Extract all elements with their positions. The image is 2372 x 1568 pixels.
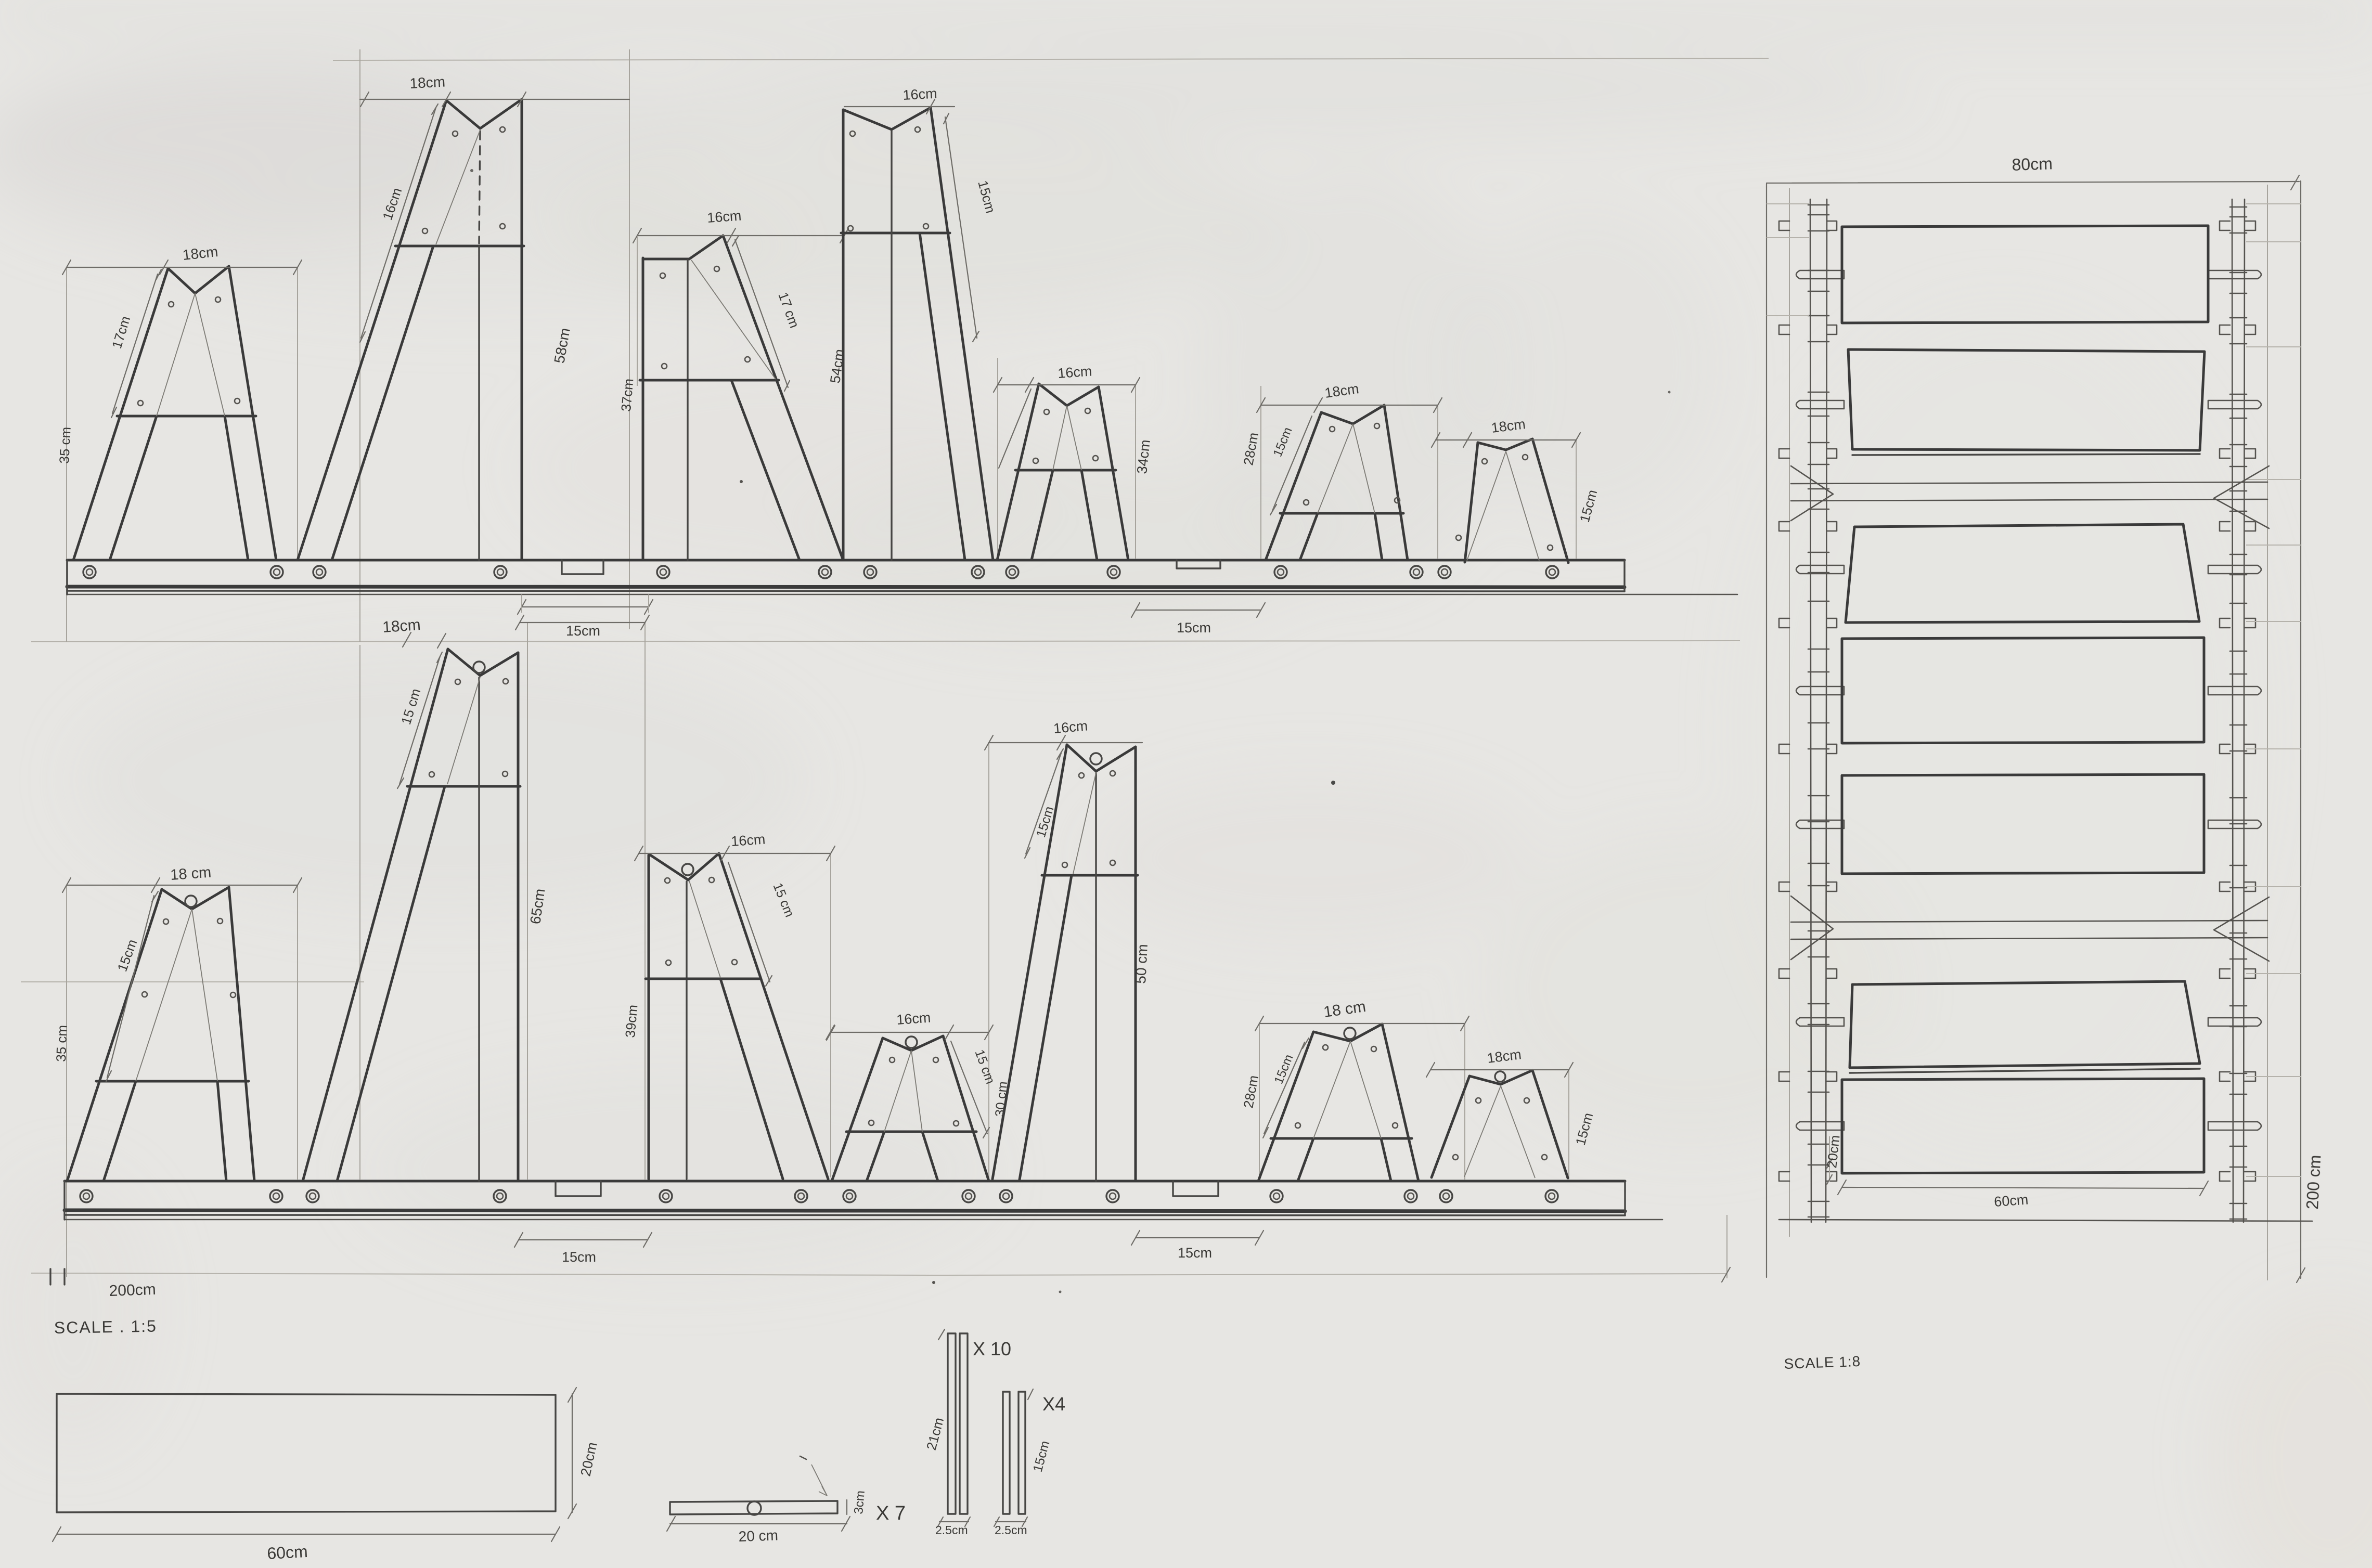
svg-text:20 cm: 20 cm <box>738 1527 778 1545</box>
svg-text:18cm: 18cm <box>382 616 421 636</box>
svg-text:2.5cm: 2.5cm <box>995 1523 1027 1537</box>
svg-text:X 10: X 10 <box>973 1338 1011 1359</box>
svg-text:SCALE . 1:5: SCALE . 1:5 <box>54 1317 157 1337</box>
svg-text:200cm: 200cm <box>109 1281 156 1300</box>
svg-text:37cm: 37cm <box>618 378 636 412</box>
svg-text:35 cm: 35 cm <box>53 1025 70 1062</box>
svg-text:15cm: 15cm <box>566 623 600 639</box>
svg-text:80cm: 80cm <box>2012 154 2053 174</box>
svg-text:16cm: 16cm <box>1053 718 1088 736</box>
svg-text:16cm: 16cm <box>1057 363 1092 381</box>
svg-text:SCALE 1:8: SCALE 1:8 <box>1784 1353 1861 1372</box>
svg-text:3cm: 3cm <box>852 1490 868 1515</box>
svg-text:18cm: 18cm <box>409 73 446 92</box>
svg-text:X4: X4 <box>1042 1393 1065 1415</box>
svg-text:15cm: 15cm <box>562 1249 596 1265</box>
svg-text:16cm: 16cm <box>730 831 766 849</box>
svg-text:16cm: 16cm <box>903 86 938 103</box>
svg-text:15cm: 15cm <box>1177 620 1211 636</box>
svg-text:200 cm: 200 cm <box>2303 1155 2324 1210</box>
svg-text:18 cm: 18 cm <box>170 864 212 884</box>
svg-text:60cm: 60cm <box>1993 1191 2029 1210</box>
svg-text:16cm: 16cm <box>896 1009 931 1028</box>
svg-text:X 7: X 7 <box>876 1502 906 1524</box>
svg-text:39cm: 39cm <box>622 1004 640 1039</box>
svg-text:35 cm: 35 cm <box>56 426 74 464</box>
svg-text:60cm: 60cm <box>266 1542 308 1563</box>
svg-text:2.5cm: 2.5cm <box>935 1523 968 1537</box>
svg-text:50 cm: 50 cm <box>1132 944 1151 984</box>
svg-text:15cm: 15cm <box>1178 1245 1212 1261</box>
svg-text:16cm: 16cm <box>706 208 742 226</box>
